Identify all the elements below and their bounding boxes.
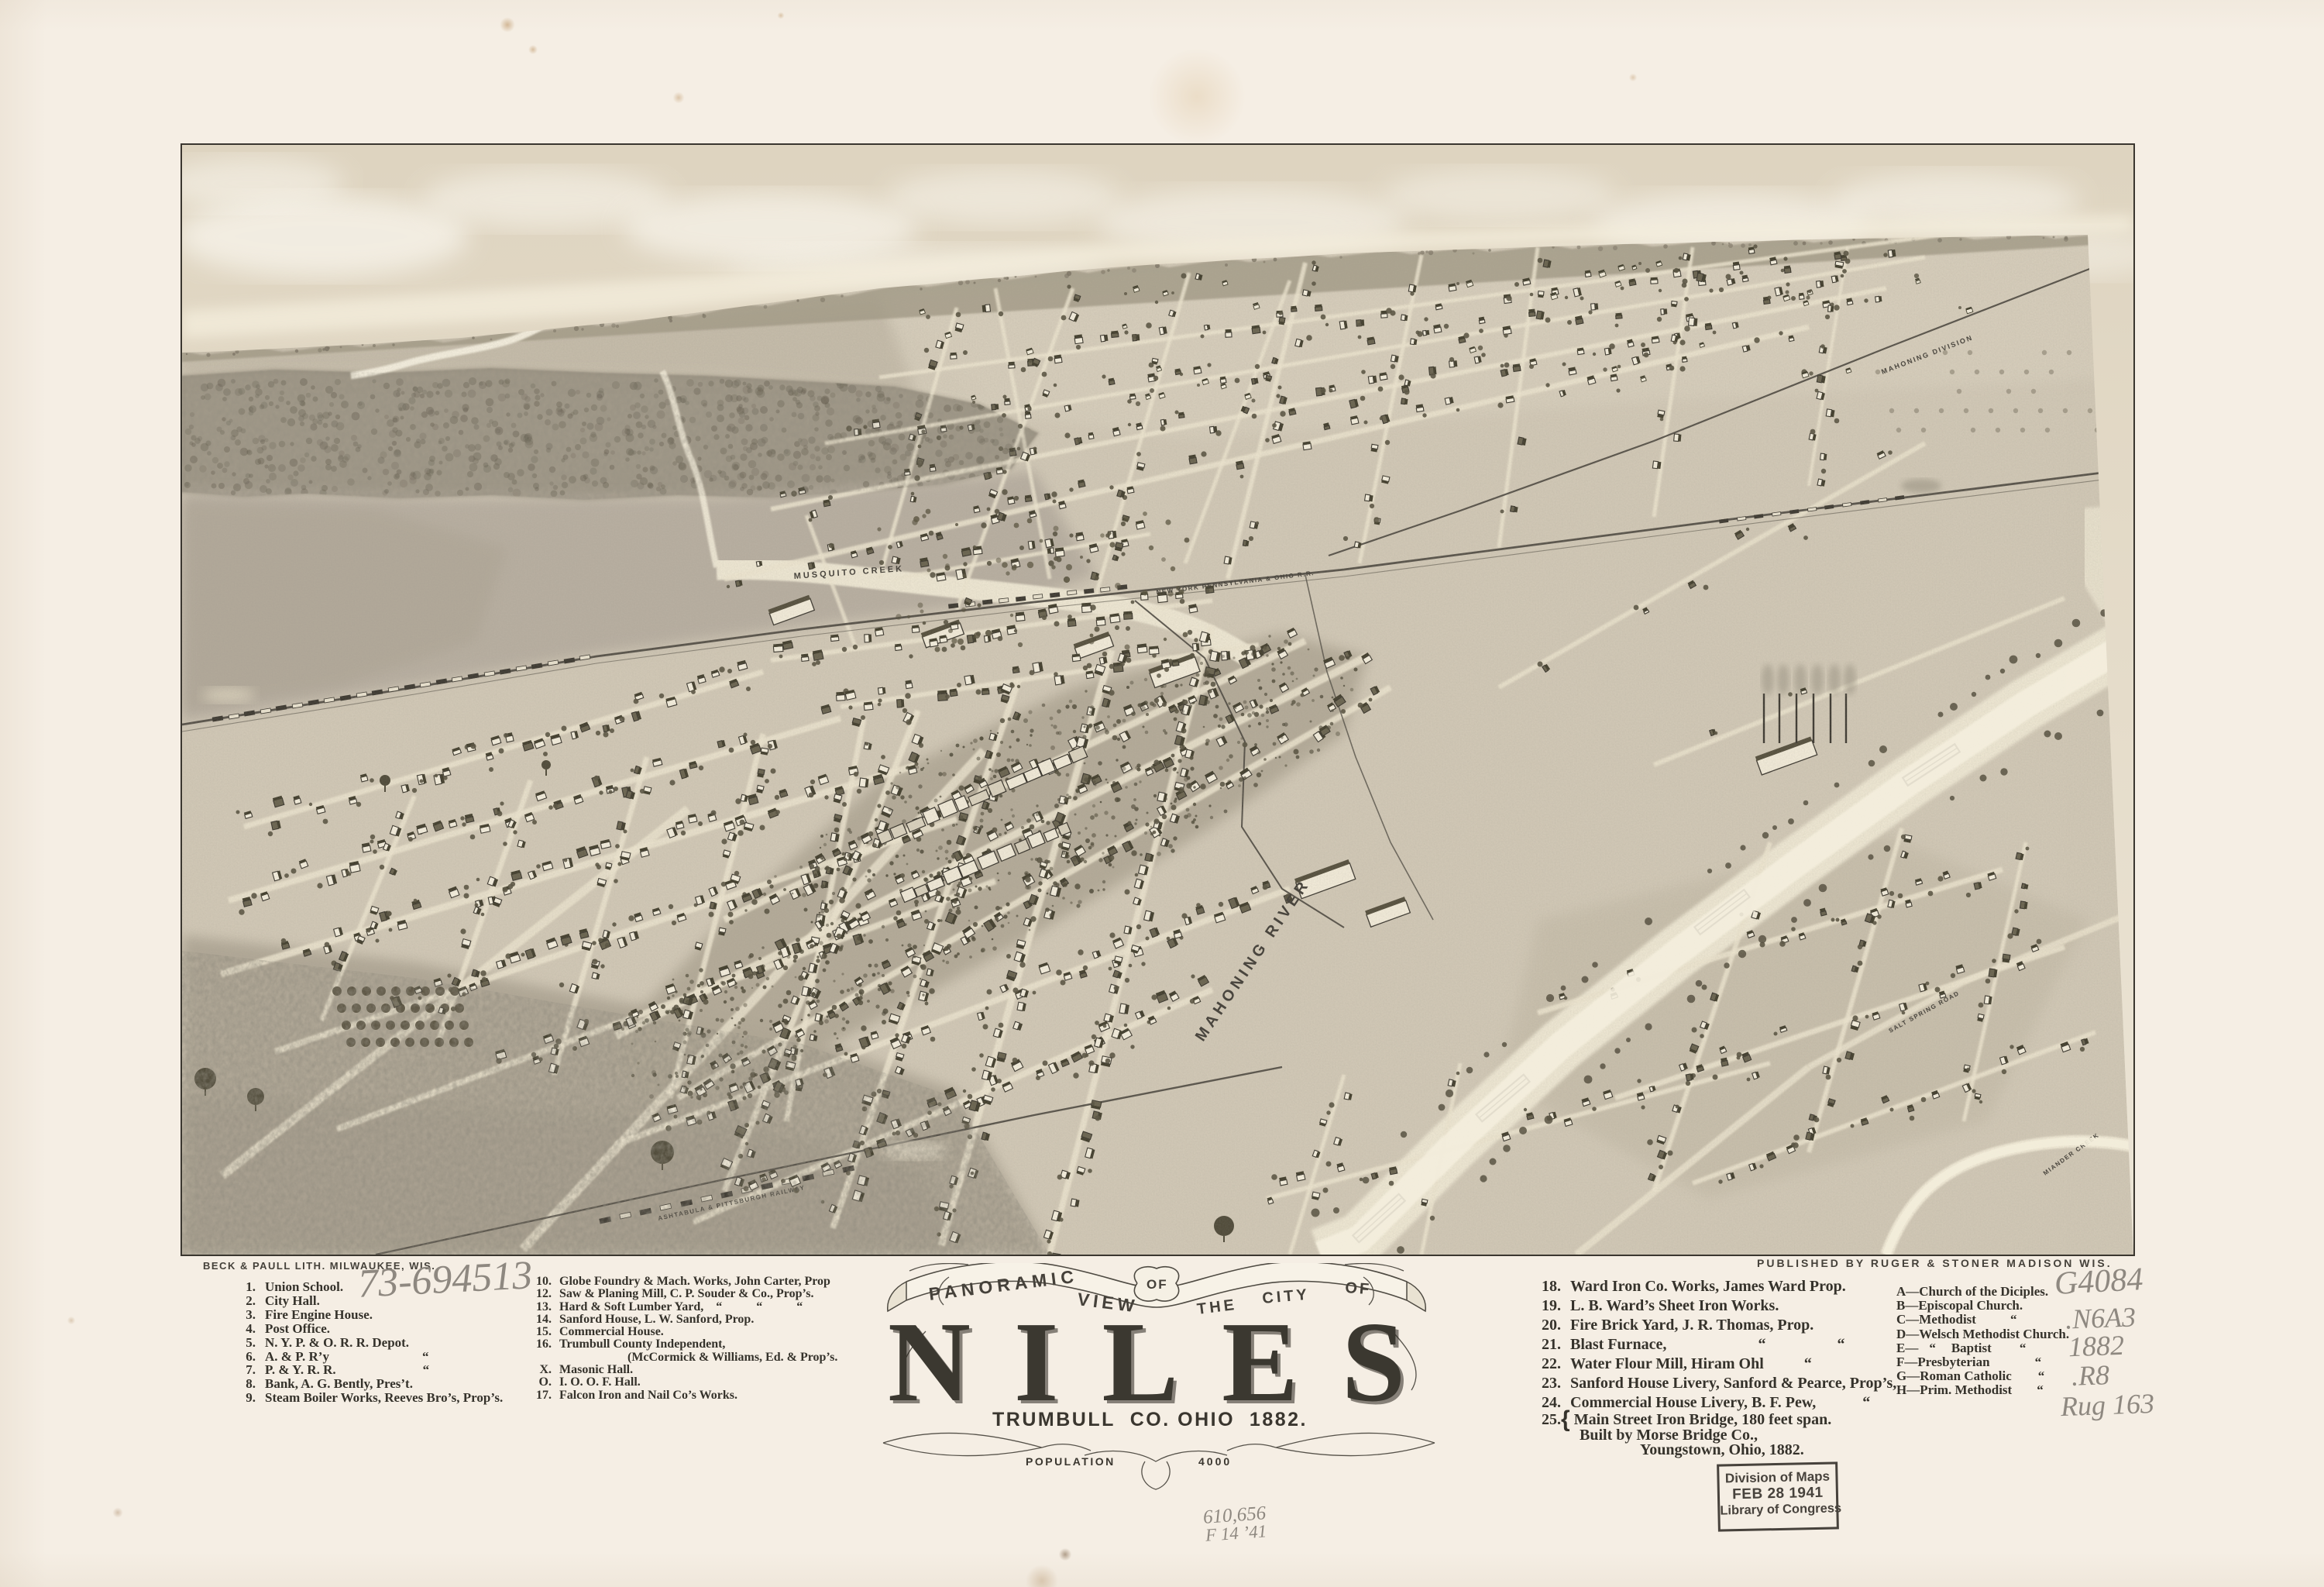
svg-text:OF: OF: [1147, 1277, 1168, 1292]
svg-text:OF: OF: [1345, 1279, 1372, 1298]
